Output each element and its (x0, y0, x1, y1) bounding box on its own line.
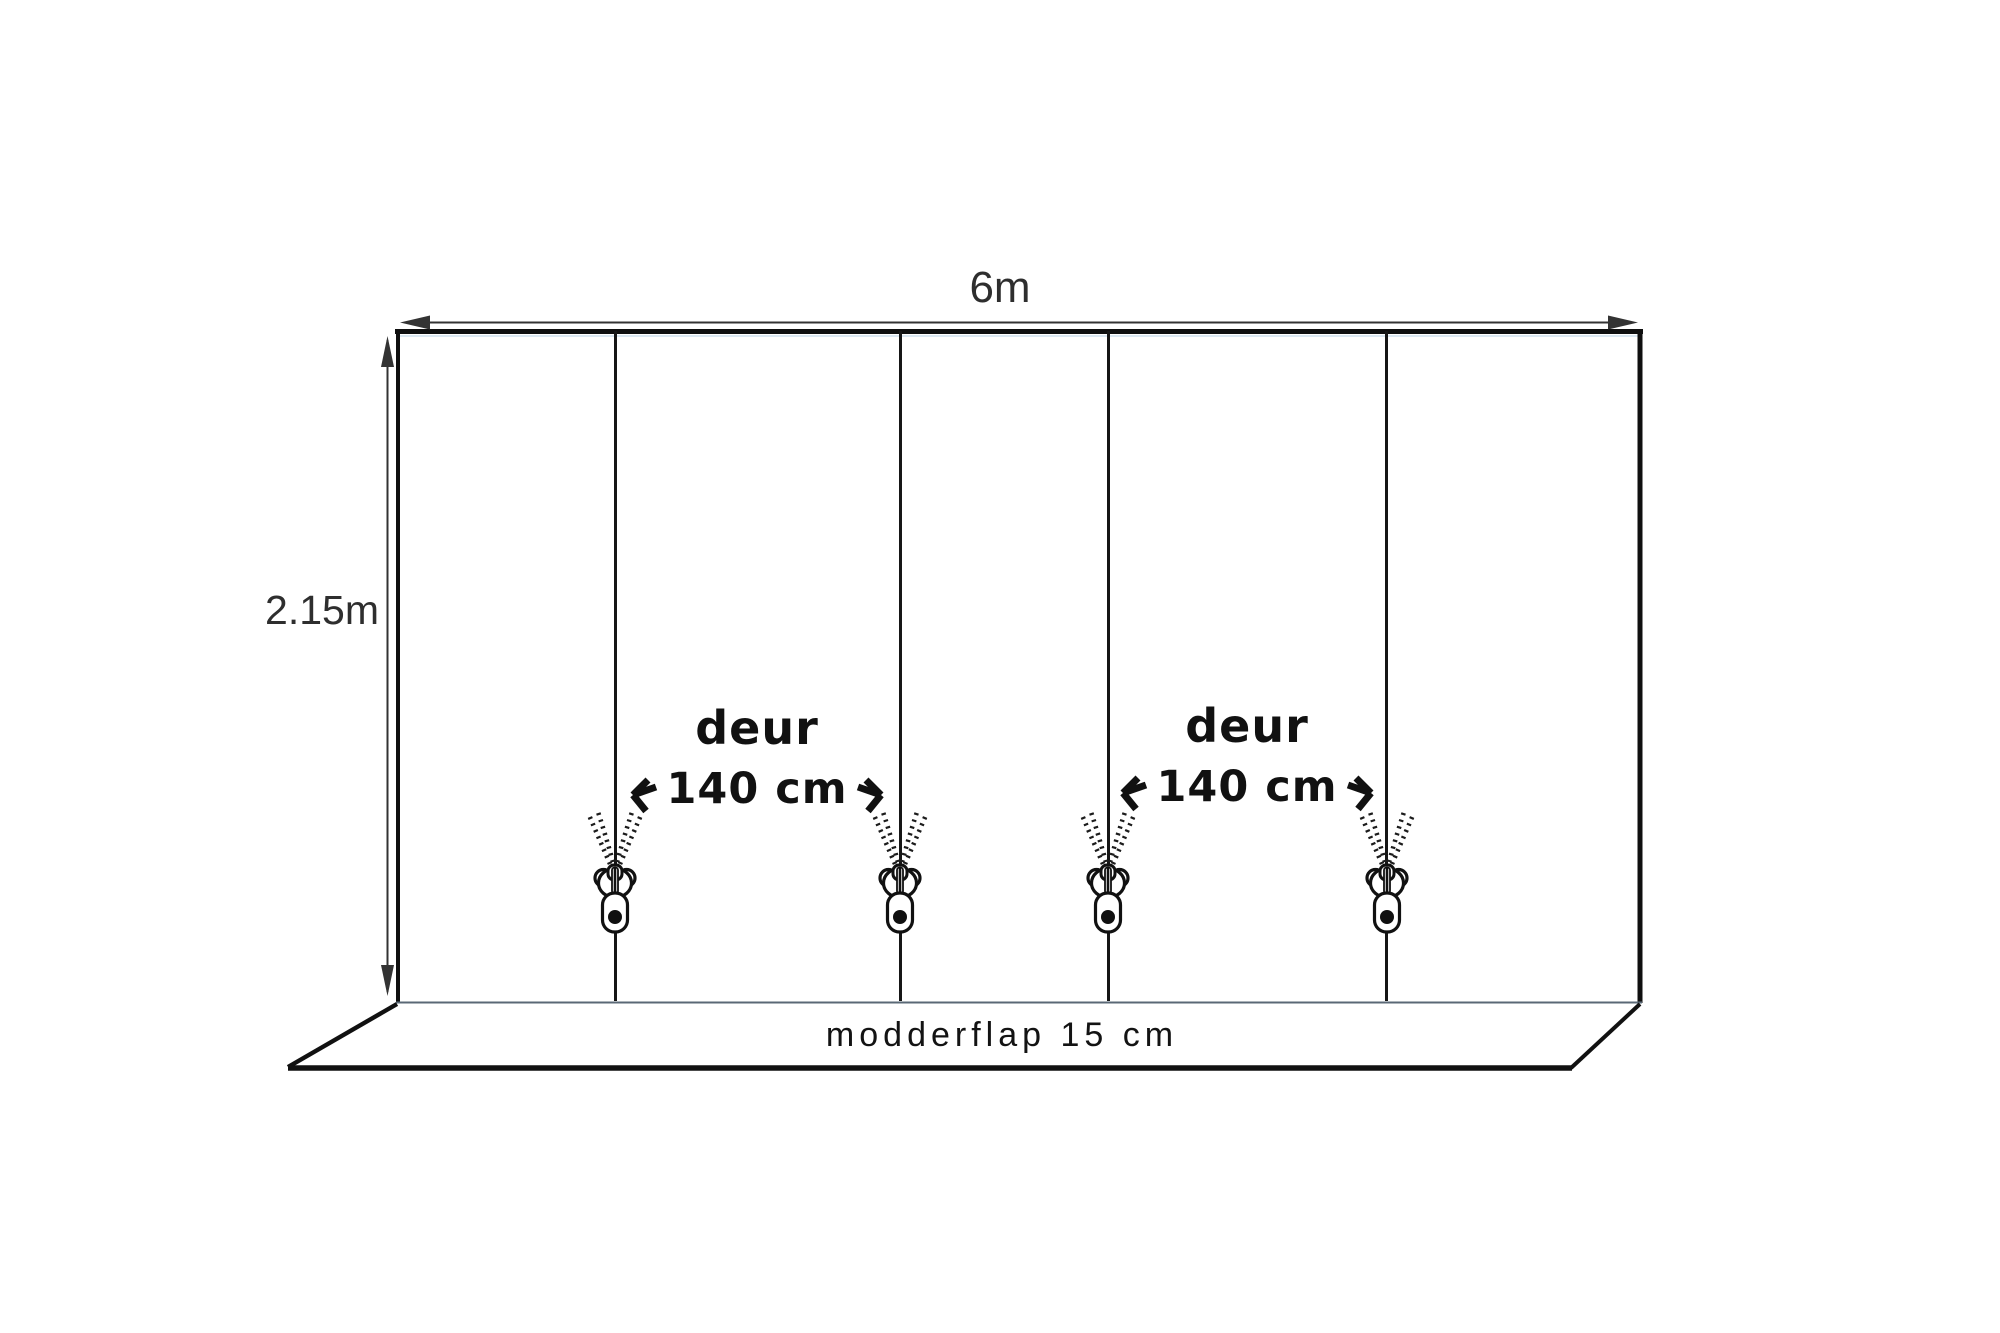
height-dimension-arrow (381, 336, 394, 996)
zipper-seam-lines (616, 331, 1387, 1001)
width-dimension-label: 6m (900, 266, 1100, 310)
door-label-2: deur 140 cm (1082, 700, 1412, 810)
arrow-left-icon (624, 774, 658, 816)
arrowhead-left-icon (400, 316, 430, 330)
arrow-right-icon (1346, 772, 1380, 814)
arrowhead-down-icon (381, 965, 394, 996)
door-width-row: 140 cm (1082, 764, 1412, 810)
arrow-left-icon (1114, 772, 1148, 814)
door-width-label: 140 cm (1156, 764, 1337, 810)
door-width-row: 140 cm (592, 766, 922, 812)
tent-wall-diagram: 6m 2.15m deur 140 cm deur (0, 0, 2000, 1333)
arrow-right-icon (856, 774, 890, 816)
door-name-label: deur (592, 702, 922, 754)
tent-wall-panel (395, 329, 1643, 1003)
width-dimension-arrow (400, 316, 1638, 330)
door-width-label: 140 cm (666, 766, 847, 812)
arrowhead-up-icon (381, 336, 394, 367)
arrowhead-right-icon (1608, 316, 1638, 330)
diagram-linework (0, 0, 2000, 1333)
door-label-1: deur 140 cm (592, 702, 922, 812)
mudflap-label: modderflap 15 cm (702, 1017, 1302, 1053)
height-dimension-label: 2.15m (179, 590, 379, 631)
door-name-label: deur (1082, 700, 1412, 752)
